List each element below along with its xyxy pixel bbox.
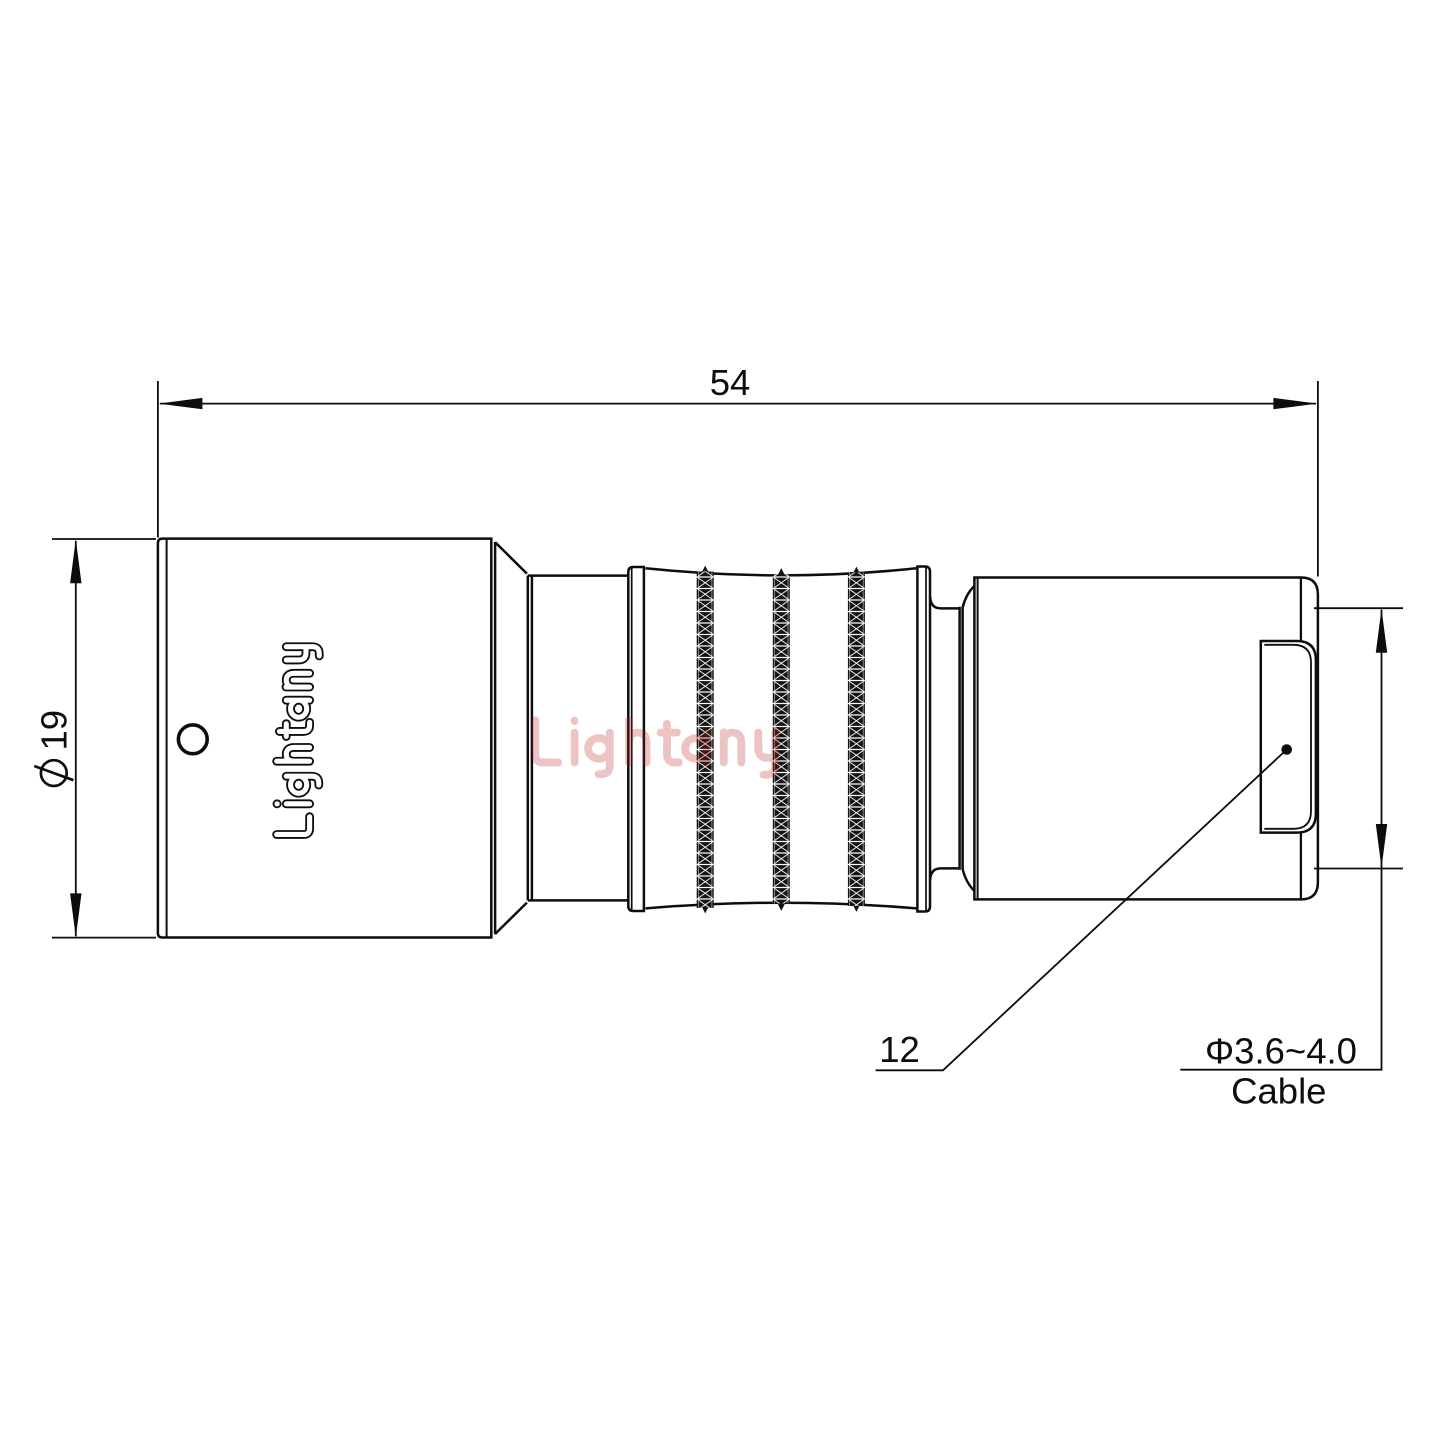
svg-text:12: 12 [879, 1029, 920, 1070]
svg-text:Cable: Cable [1231, 1071, 1326, 1112]
svg-text:54: 54 [710, 362, 751, 403]
svg-text:Φ3.6~4.0: Φ3.6~4.0 [1205, 1030, 1357, 1071]
svg-text:19: 19 [33, 710, 74, 751]
